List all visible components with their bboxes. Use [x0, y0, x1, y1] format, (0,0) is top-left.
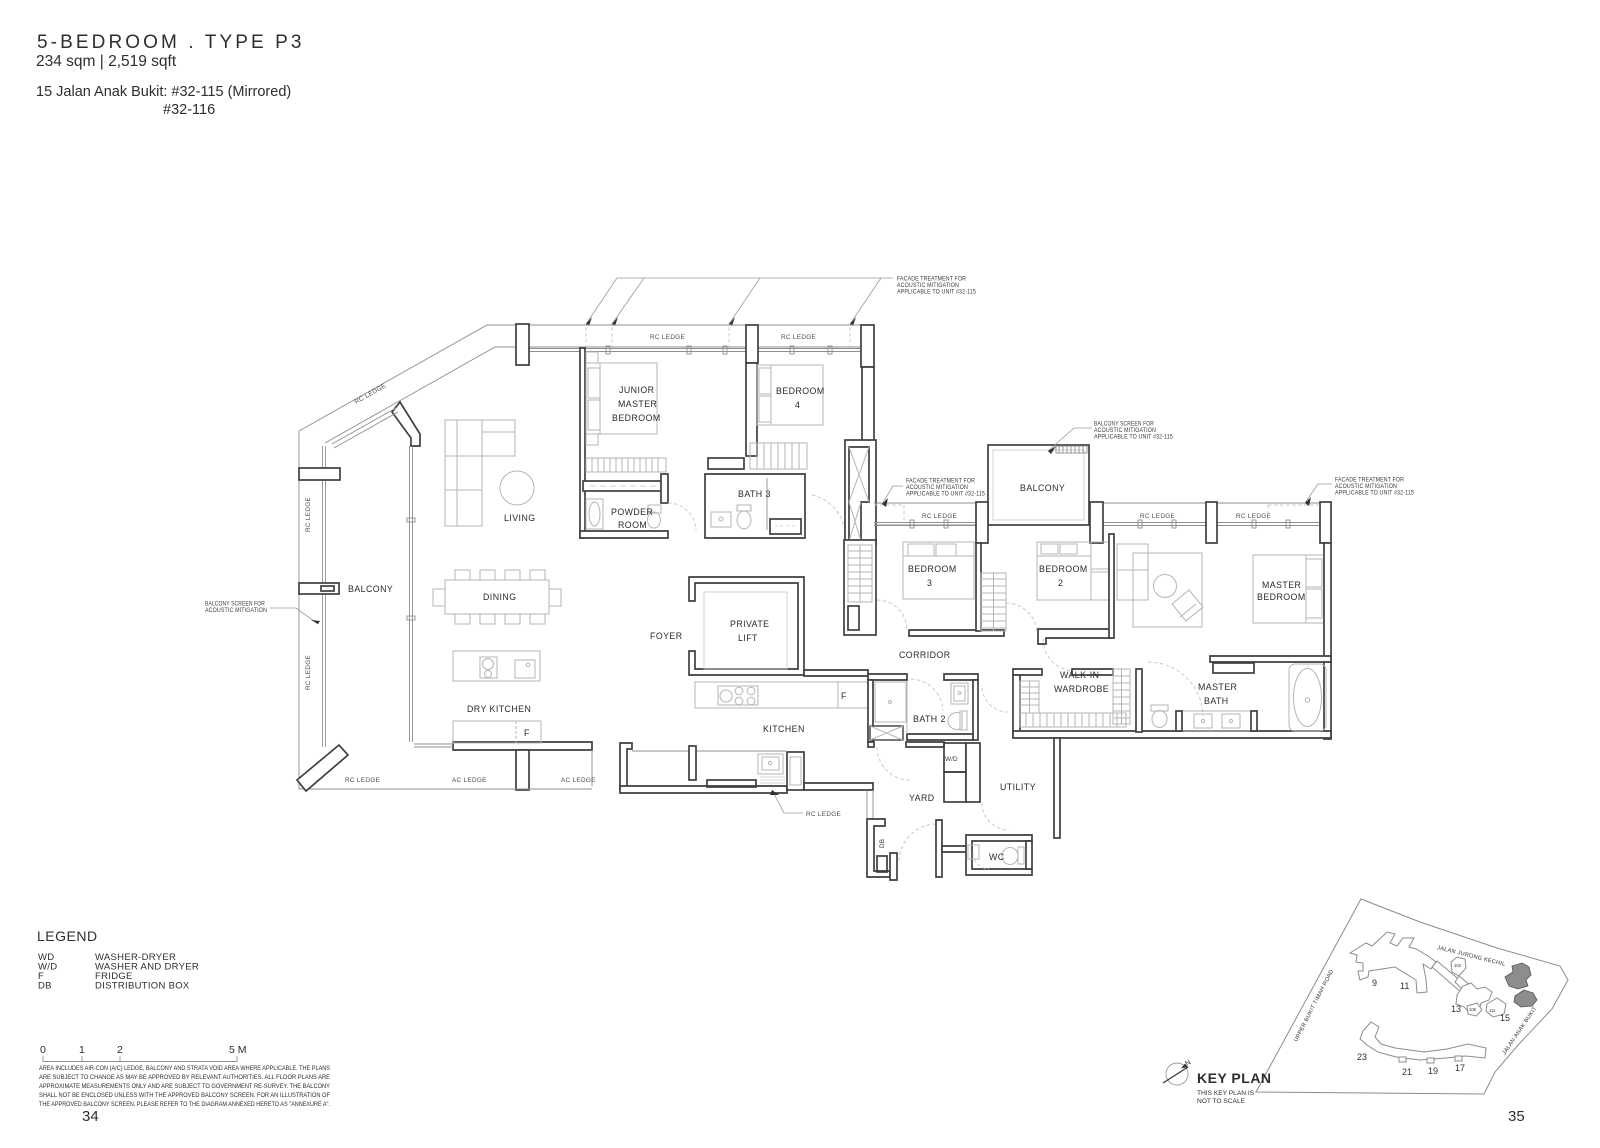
- svg-text:#32-116: #32-116: [163, 102, 215, 118]
- svg-text:POWDER: POWDER: [611, 507, 653, 517]
- svg-text:NOT TO SCALE: NOT TO SCALE: [1197, 1098, 1246, 1105]
- svg-text:RC LEDGE: RC LEDGE: [305, 497, 312, 532]
- svg-text:FOYER: FOYER: [650, 631, 683, 641]
- svg-text:11: 11: [1400, 981, 1409, 991]
- svg-text:APPLICABLE TO UNIT #32-115: APPLICABLE TO UNIT #32-115: [1094, 434, 1173, 441]
- svg-text:DINING: DINING: [483, 592, 517, 602]
- svg-text:BEDROOM: BEDROOM: [1257, 592, 1306, 602]
- svg-text:RC LEDGE: RC LEDGE: [1140, 513, 1175, 520]
- svg-text:21: 21: [1402, 1067, 1412, 1077]
- svg-text:APPROXIMATE MEASUREMENTS ONLY: APPROXIMATE MEASUREMENTS ONLY AND ARE SU…: [39, 1083, 331, 1090]
- svg-text:5 M: 5 M: [229, 1044, 247, 1056]
- svg-text:BEDROOM: BEDROOM: [1039, 564, 1088, 574]
- svg-text:2: 2: [117, 1044, 123, 1056]
- svg-text:RC LEDGE: RC LEDGE: [806, 811, 841, 818]
- svg-text:KEY PLAN: KEY PLAN: [1197, 1070, 1272, 1086]
- svg-text:BALCONY: BALCONY: [1020, 483, 1065, 493]
- svg-text:4: 4: [795, 400, 800, 410]
- svg-text:17: 17: [1455, 1063, 1465, 1073]
- svg-text:AC LEDGE: AC LEDGE: [561, 777, 596, 784]
- svg-text:THIS KEY PLAN IS: THIS KEY PLAN IS: [1197, 1090, 1255, 1097]
- svg-text:RC LEDGE: RC LEDGE: [650, 334, 685, 341]
- svg-text:RC LEDGE: RC LEDGE: [354, 382, 388, 405]
- svg-text:AC LEDGE: AC LEDGE: [452, 777, 487, 784]
- svg-text:111: 111: [1489, 1008, 1496, 1013]
- svg-text:15: 15: [1500, 1013, 1510, 1023]
- svg-text:DRY KITCHEN: DRY KITCHEN: [467, 704, 531, 714]
- svg-text:LIFT: LIFT: [738, 633, 758, 643]
- svg-text:SHALL NOT BE ENCLOSED UNLESS W: SHALL NOT BE ENCLOSED UNLESS WITH THE AP…: [39, 1092, 330, 1099]
- svg-text:RC LEDGE: RC LEDGE: [305, 655, 312, 690]
- svg-text:F: F: [841, 691, 847, 701]
- svg-text:RC LEDGE: RC LEDGE: [922, 513, 957, 520]
- svg-text:3: 3: [927, 578, 932, 588]
- svg-text:WALK-IN: WALK-IN: [1060, 670, 1099, 680]
- svg-text:KITCHEN: KITCHEN: [763, 724, 805, 734]
- svg-text:APPLICABLE TO UNIT #32-115: APPLICABLE TO UNIT #32-115: [1335, 490, 1414, 497]
- svg-text:BALCONY: BALCONY: [348, 584, 393, 594]
- svg-text:DB: DB: [879, 839, 886, 848]
- svg-text:MASTER: MASTER: [1198, 682, 1237, 692]
- svg-text:BATH: BATH: [1204, 696, 1229, 706]
- svg-text:APPLICABLE TO UNIT #32-115: APPLICABLE TO UNIT #32-115: [906, 491, 985, 498]
- svg-text:W/D: W/D: [945, 756, 958, 763]
- svg-text:YARD: YARD: [909, 793, 935, 803]
- svg-text:DISTRIBUTION BOX: DISTRIBUTION BOX: [95, 981, 190, 992]
- svg-text:APPLICABLE TO UNIT #32-115: APPLICABLE TO UNIT #32-115: [897, 289, 976, 296]
- svg-text:BATH 3: BATH 3: [738, 489, 771, 499]
- svg-text:THE APPROVED BALCONY SCREEN, P: THE APPROVED BALCONY SCREEN, PLEASE REFE…: [39, 1101, 330, 1108]
- svg-text:F: F: [524, 728, 530, 738]
- svg-text:BATH 2: BATH 2: [913, 714, 946, 724]
- svg-text:1: 1: [79, 1044, 85, 1056]
- svg-text:AREA INCLUDES AIR-CON (A/C) LE: AREA INCLUDES AIR-CON (A/C) LEDGE, BALCO…: [39, 1065, 330, 1072]
- svg-text:MASTER: MASTER: [1262, 580, 1301, 590]
- svg-text:UTILITY: UTILITY: [1000, 782, 1036, 792]
- svg-text:234 sqm | 2,519 sqft: 234 sqm | 2,519 sqft: [36, 53, 177, 70]
- svg-text:RC LEDGE: RC LEDGE: [781, 334, 816, 341]
- svg-text:34: 34: [82, 1108, 99, 1125]
- svg-text:WC: WC: [989, 852, 1005, 862]
- svg-text:ACOUSTIC MITIGATION: ACOUSTIC MITIGATION: [205, 607, 267, 614]
- svg-text:LIVING: LIVING: [504, 513, 536, 523]
- svg-text:102: 102: [1454, 963, 1462, 968]
- svg-text:JUNIOR: JUNIOR: [619, 385, 654, 395]
- svg-text:BEDROOM: BEDROOM: [612, 413, 661, 423]
- svg-text:MASTER: MASTER: [618, 399, 657, 409]
- svg-text:BEDROOM: BEDROOM: [908, 564, 957, 574]
- svg-text:9: 9: [1372, 978, 1377, 988]
- svg-text:DB: DB: [38, 981, 52, 992]
- svg-text:2: 2: [1058, 578, 1063, 588]
- svg-text:35: 35: [1508, 1108, 1525, 1125]
- svg-text:CORRIDOR: CORRIDOR: [899, 650, 951, 660]
- svg-text:RC LEDGE: RC LEDGE: [345, 777, 380, 784]
- svg-text:5-BEDROOM . TYPE P3: 5-BEDROOM . TYPE P3: [37, 32, 305, 53]
- svg-text:15 Jalan Anak Bukit: #32-115 (: 15 Jalan Anak Bukit: #32-115 (Mirrored): [36, 84, 291, 100]
- svg-text:19: 19: [1428, 1066, 1438, 1076]
- svg-text:ROOM: ROOM: [618, 520, 647, 530]
- svg-text:13: 13: [1451, 1004, 1461, 1014]
- svg-text:PRIVATE: PRIVATE: [730, 619, 769, 629]
- svg-text:RC LEDGE: RC LEDGE: [1236, 513, 1271, 520]
- svg-text:23: 23: [1357, 1052, 1367, 1062]
- svg-text:0: 0: [40, 1044, 46, 1056]
- svg-text:WARDROBE: WARDROBE: [1054, 684, 1109, 694]
- svg-text:ARE SUBJECT TO CHANGE AS MAY B: ARE SUBJECT TO CHANGE AS MAY BE APPROVED…: [39, 1074, 330, 1081]
- svg-text:106: 106: [1469, 1007, 1477, 1012]
- svg-text:LEGEND: LEGEND: [37, 928, 98, 944]
- svg-text:BEDROOM: BEDROOM: [776, 386, 825, 396]
